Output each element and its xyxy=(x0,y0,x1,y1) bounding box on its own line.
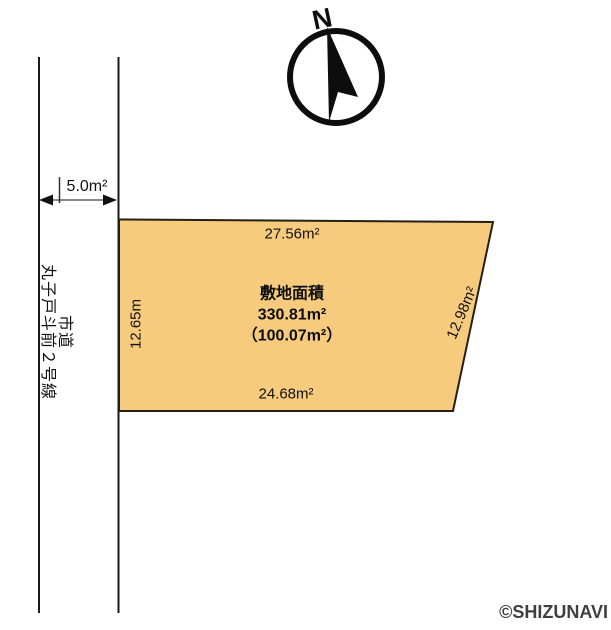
parcel-area-title: 敷地面積 xyxy=(242,284,343,305)
land-plot-diagram: N 5.0m² 市道 丸子戸斗前２号線 27.56m² 12.65m 12.98… xyxy=(0,0,611,630)
road-name-line2: 丸子戸斗前２号線 xyxy=(39,264,56,400)
edge-bottom-label: 24.68m² xyxy=(258,386,313,403)
road-width-label: 5.0m² xyxy=(67,178,108,196)
copyright-label: ©SHIZUNAVI xyxy=(499,602,608,623)
north-arrow-icon xyxy=(327,27,358,122)
north-label: N xyxy=(310,2,335,35)
compass-icon: N xyxy=(290,2,382,123)
parcel-area-sub: （100.07m²） xyxy=(242,326,343,347)
edge-top-label: 27.56m² xyxy=(264,226,319,243)
edge-left-label: 12.65m xyxy=(128,299,145,349)
parcel-area-value: 330.81m² xyxy=(242,305,343,326)
dimension-arrowhead-left xyxy=(39,195,53,206)
parcel-area-block: 敷地面積 330.81m² （100.07m²） xyxy=(242,284,343,347)
road-name-label: 市道 丸子戸斗前２号線 xyxy=(39,264,73,400)
road-name-line1: 市道 xyxy=(56,264,73,400)
dimension-arrowhead-right xyxy=(103,195,117,206)
